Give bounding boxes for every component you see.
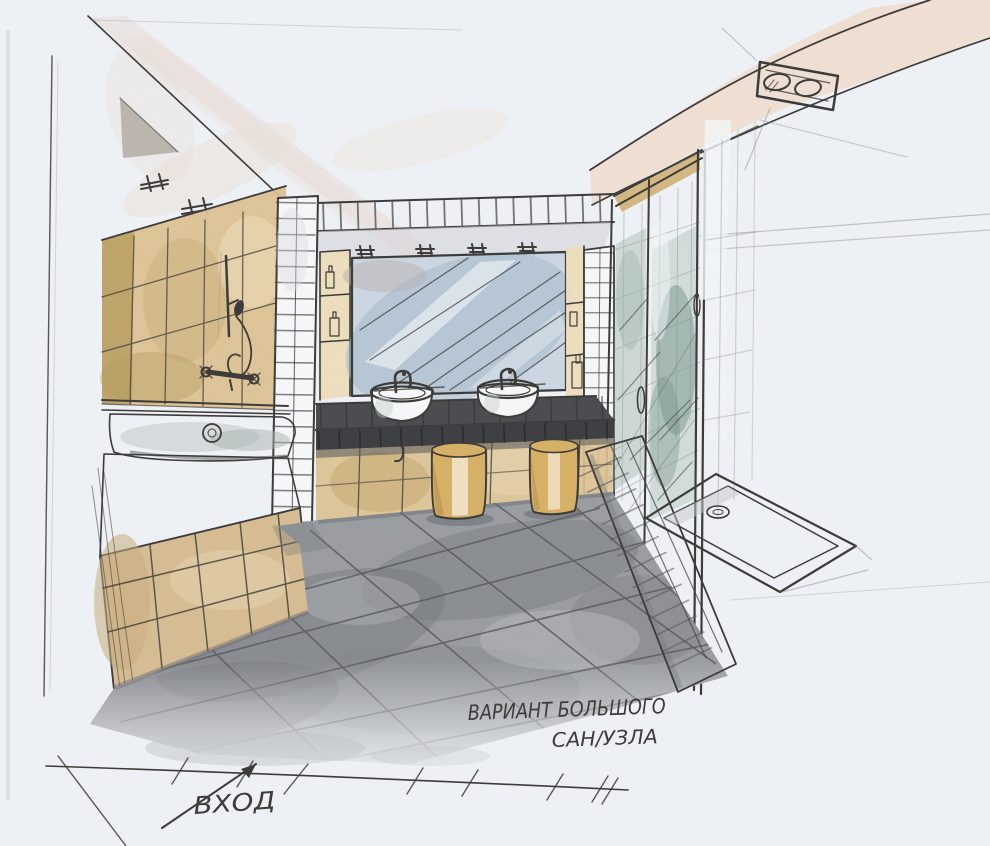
sketch-paper: ВХОД ВАРИАНТ БОЛЬШОГО САН/УЗЛА [0, 0, 990, 846]
bathroom-sketch: ВХОД ВАРИАНТ БОЛЬШОГО САН/УЗЛА [0, 0, 990, 846]
paper-grain [0, 0, 990, 846]
